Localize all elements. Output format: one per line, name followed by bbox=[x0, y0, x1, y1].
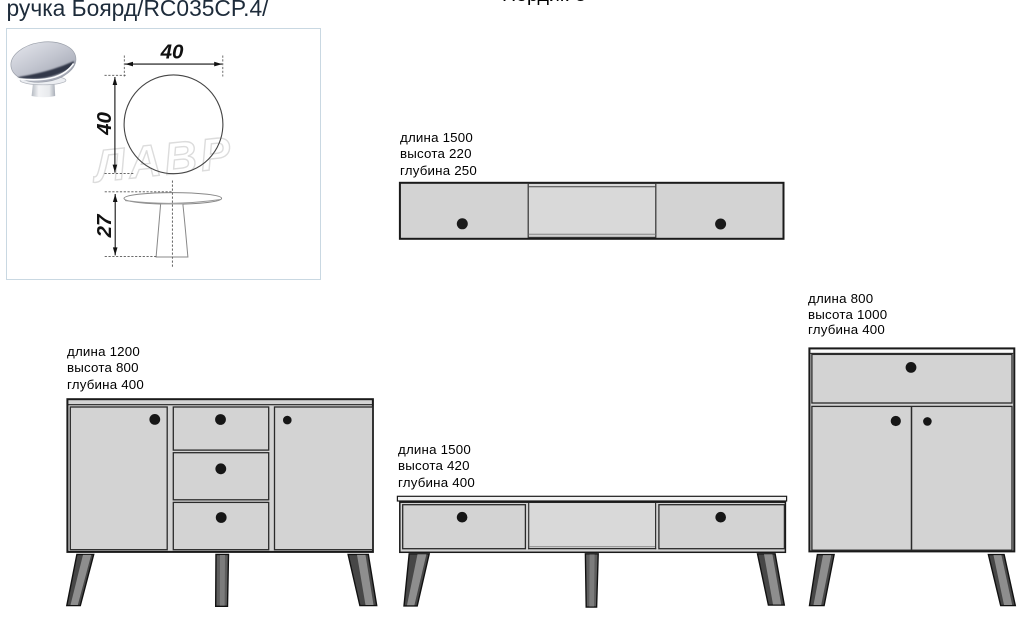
svg-text:40: 40 bbox=[93, 112, 116, 136]
svg-text:40: 40 bbox=[160, 41, 184, 64]
svg-text:ЛАВР: ЛАВР bbox=[89, 127, 236, 193]
svg-text:27: 27 bbox=[93, 213, 116, 238]
